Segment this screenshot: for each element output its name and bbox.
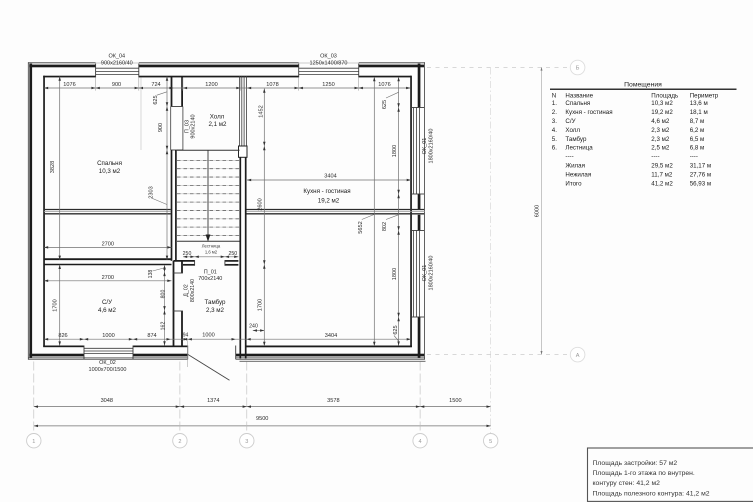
svg-text:900х2140: 900х2140 [191,114,197,138]
svg-text:11,7 м2: 11,7 м2 [651,171,673,178]
svg-text:1: 1 [32,439,35,445]
svg-text:С/У: С/У [102,299,112,306]
svg-text:240: 240 [249,323,258,329]
svg-text:2303: 2303 [148,186,154,198]
svg-text:Площадь: Площадь [651,92,678,99]
svg-text:контуру стен: 41,2 м2: контуру стен: 41,2 м2 [593,480,661,487]
svg-text:Лестница: Лестница [202,244,221,249]
svg-text:6000: 6000 [535,205,541,217]
svg-text:27,76 м: 27,76 м [690,171,711,178]
svg-text:N: N [552,92,556,99]
svg-text:Кухня - гостиная: Кухня - гостиная [565,109,612,116]
svg-text:1000: 1000 [202,333,214,339]
svg-text:Спальня: Спальня [565,100,590,107]
svg-text:Кухня - гостиная: Кухня - гостиная [303,188,350,195]
svg-text:9500: 9500 [256,416,268,422]
svg-text:1250х1400/870: 1250х1400/870 [310,61,348,67]
svg-text:6,2 м: 6,2 м [690,127,705,134]
svg-text:1200: 1200 [205,82,217,88]
svg-text:2,5 м2: 2,5 м2 [651,145,670,152]
svg-text:1700: 1700 [258,299,264,311]
svg-text:1076: 1076 [378,82,390,88]
svg-text:Тамбур: Тамбур [565,136,587,143]
svg-text:1000х700/1500: 1000х700/1500 [89,367,127,373]
svg-text:1374: 1374 [207,398,219,404]
svg-text:19,2 м2: 19,2 м2 [651,109,673,116]
svg-text:----: ---- [565,153,573,160]
svg-text:Холл: Холл [565,127,580,134]
svg-text:1700: 1700 [53,299,59,311]
svg-text:625: 625 [153,95,159,104]
svg-text:2,3 м2: 2,3 м2 [651,127,670,134]
svg-text:250: 250 [183,251,192,257]
svg-text:Площадь 1-го этажа по внутрен.: Площадь 1-го этажа по внутрен. [593,470,695,477]
svg-text:6,5 м: 6,5 м [690,136,705,143]
svg-text:С/У: С/У [565,118,575,125]
svg-text:13,6 м: 13,6 м [690,100,708,107]
svg-text:1800х2160/40: 1800х2160/40 [429,129,435,164]
svg-text:2700: 2700 [102,275,114,281]
svg-text:802: 802 [382,222,388,231]
svg-text:----: ---- [651,153,659,160]
svg-text:700х2140: 700х2140 [198,276,222,282]
svg-text:Периметр: Периметр [690,92,719,99]
svg-text:1076: 1076 [63,82,75,88]
svg-text:2: 2 [178,439,181,445]
svg-text:Б: Б [576,66,580,72]
svg-text:18,1 м: 18,1 м [690,109,708,116]
svg-text:Холл: Холл [210,114,225,121]
svg-text:Площадь застройки: 57 м2: Площадь застройки: 57 м2 [593,459,678,467]
svg-text:5652: 5652 [358,221,364,233]
svg-text:ОК_01: ОК_01 [422,138,428,155]
svg-text:6.: 6. [552,145,557,152]
svg-text:5: 5 [489,439,492,445]
svg-text:56,93 м: 56,93 м [690,180,711,187]
svg-text:2,3 м2: 2,3 м2 [206,307,225,314]
svg-text:П_03: П_03 [184,120,190,133]
svg-text:900: 900 [112,82,121,88]
svg-text:5.: 5. [552,136,557,143]
svg-text:4.: 4. [552,127,557,134]
svg-text:1250: 1250 [322,82,334,88]
svg-text:3404: 3404 [325,333,337,339]
svg-text:625: 625 [393,325,399,334]
svg-text:4: 4 [419,439,422,445]
svg-text:3.: 3. [552,118,557,125]
svg-text:Лестница: Лестница [565,145,593,152]
svg-text:900: 900 [158,123,164,132]
svg-text:10,3 м2: 10,3 м2 [651,100,673,107]
svg-text:8,7 м: 8,7 м [690,118,705,125]
svg-text:29,5 м2: 29,5 м2 [651,162,673,169]
svg-text:3828: 3828 [50,161,56,173]
svg-text:41,2 м2: 41,2 м2 [651,180,673,187]
svg-text:19,2 м2: 19,2 м2 [318,198,340,205]
svg-text:Д_02: Д_02 [184,284,190,296]
svg-text:2,1 м2: 2,1 м2 [208,121,227,128]
svg-text:31,17 м: 31,17 м [690,162,711,169]
svg-text:2600: 2600 [258,198,264,210]
svg-text:1800х2160/40: 1800х2160/40 [429,256,435,291]
svg-text:724: 724 [151,82,160,88]
svg-text:3578: 3578 [327,398,339,404]
svg-text:Название: Название [565,92,593,99]
svg-text:1000: 1000 [102,333,114,339]
svg-text:162: 162 [160,322,166,331]
svg-text:Нежилая: Нежилая [565,171,591,178]
svg-text:Итого: Итого [565,180,582,187]
svg-text:Спальня: Спальня [97,160,122,167]
svg-text:3048: 3048 [101,398,113,404]
svg-text:625: 625 [382,100,388,109]
svg-text:1.: 1. [552,100,557,107]
svg-text:1800: 1800 [392,268,398,280]
svg-text:П_01: П_01 [204,270,217,276]
svg-text:Помещения: Помещения [624,82,662,89]
svg-text:1,6 м2: 1,6 м2 [205,249,218,254]
svg-text:94: 94 [183,333,189,339]
svg-text:874: 874 [147,333,156,339]
svg-text:1500: 1500 [449,398,461,404]
svg-text:900х2160/40: 900х2160/40 [101,61,133,67]
svg-text:800: 800 [160,290,166,299]
svg-text:1078: 1078 [266,82,278,88]
svg-text:800х2140: 800х2140 [190,279,196,302]
svg-text:ОК_03: ОК_03 [320,54,337,60]
svg-text:2700: 2700 [102,241,114,247]
svg-text:ОК_01: ОК_01 [422,265,428,282]
svg-text:1800: 1800 [392,145,398,157]
svg-text:3: 3 [245,439,248,445]
svg-text:----: ---- [690,153,698,160]
svg-text:4,6 м2: 4,6 м2 [98,307,117,314]
svg-text:Жилая: Жилая [565,162,585,169]
svg-text:ОК_04: ОК_04 [108,54,125,60]
svg-text:3404: 3404 [324,173,336,179]
svg-text:1452: 1452 [258,105,264,117]
svg-text:А: А [576,353,580,359]
svg-text:Площадь полезного контура: 41,: Площадь полезного контура: 41,2 м2 [593,490,710,497]
svg-text:2,3 м2: 2,3 м2 [651,136,670,143]
svg-text:6,8 м: 6,8 м [690,145,705,152]
svg-text:10,3 м2: 10,3 м2 [99,168,121,175]
svg-text:4,6 м2: 4,6 м2 [651,118,670,125]
svg-text:Тамбур: Тамбур [205,299,227,306]
svg-text:250: 250 [228,251,237,257]
svg-text:2.: 2. [552,109,557,116]
svg-text:ОК_02: ОК_02 [99,360,116,366]
